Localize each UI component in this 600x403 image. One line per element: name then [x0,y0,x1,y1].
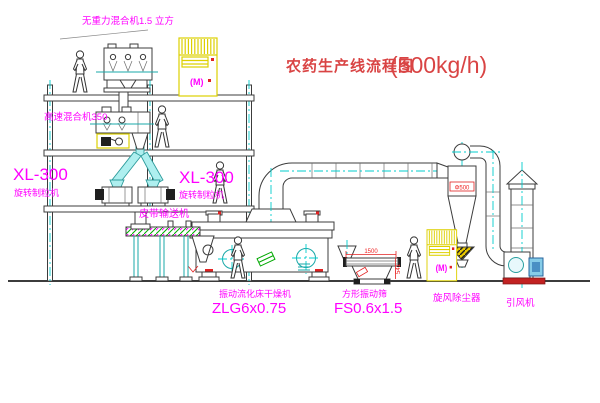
screen-length-dim: 1500 [364,249,378,255]
label-granulator-model-left: XL-300 [13,165,68,184]
label-granulator-model-right: XL-300 [179,168,234,187]
label-belt-conveyor: 皮带输送机 [139,207,189,220]
label-screen-name: 方形振动筛 [342,288,387,299]
granulator-left-motor [95,189,104,200]
cyclone-body [448,166,476,196]
cyclone-dimension: Φ500 [455,186,470,192]
induced-draft-fan [503,252,545,284]
label-granulator-name-left: 旋转制粒机 [14,187,59,198]
person-floor1 [73,51,87,92]
floor-slab-1 [44,95,254,101]
granulator-left [95,180,132,206]
flow-diagram-canvas: (M) Φ500 [0,0,600,403]
person-ground-right [407,237,421,278]
cyclone-inlet-reducer [437,163,448,178]
bucket-elevator-2: (M) [427,230,457,281]
granulator-right-motor [166,189,175,200]
elevator-1-badge: (M) [190,77,204,87]
dryer-top-frame [192,222,334,230]
belt-conveyor [126,221,200,281]
label-screen-model: FS0.6x1.5 [334,300,402,317]
granulator-right [138,180,175,206]
bucket-elevator-1: (M) [179,38,217,96]
label-fan: 引风机 [506,297,535,309]
person-floor2 [155,106,169,147]
elevator-2-badge: (M) [436,263,448,274]
label-dryer-model: ZLG6x0.75 [212,300,286,317]
label-granulator-name-right: 旋转制粒机 [179,189,224,200]
screen-height-dim: 541 [396,263,402,274]
fluid-bed-dryer [188,211,334,281]
title-capacity: (500kg/h) [390,52,487,78]
process-flow-drawing: (M) Φ500 [0,0,600,403]
label-high-speed-mixer: 高速混合机350 [44,111,107,123]
fan-base [503,278,545,284]
screen-deck [346,258,398,266]
vibrating-screen: 1500 541 [338,240,402,284]
label-leader-line [60,30,148,39]
label-cyclone: 旋风除尘器 [433,292,481,304]
drawing-title: 农药生产线流程图 (500kg/h) [285,52,487,78]
label-gravity-mixer: 无重力混合机1.5 立方 [82,15,174,27]
label-dryer-name: 振动流化床干燥机 [219,288,291,299]
exhaust-duct [246,163,448,224]
